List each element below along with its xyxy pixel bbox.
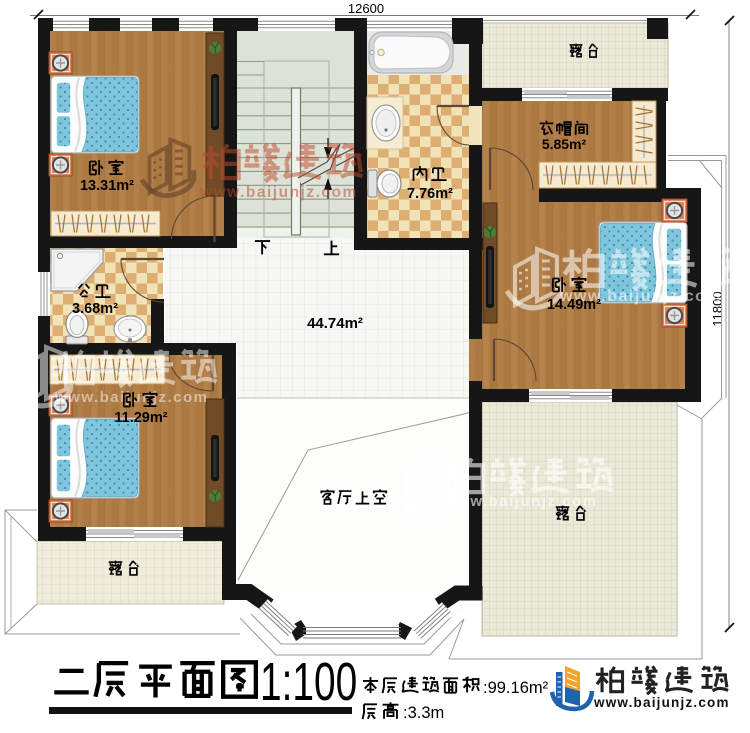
svg-text:13.31m²: 13.31m² — [80, 178, 134, 194]
svg-text:44.74m²: 44.74m² — [307, 315, 363, 332]
svg-text::99.16m²: :99.16m² — [483, 679, 549, 697]
svg-text:11.29m²: 11.29m² — [114, 410, 167, 426]
svg-text:3.68m²: 3.68m² — [72, 301, 118, 317]
svg-text:14.49m²: 14.49m² — [547, 297, 601, 313]
svg-text::3.3m: :3.3m — [403, 704, 444, 722]
svg-text:www.baijunjz.com: www.baijunjz.com — [199, 184, 358, 201]
svg-text:www.baijunjz.com: www.baijunjz.com — [54, 389, 208, 406]
svg-text:5.85m²: 5.85m² — [542, 136, 587, 152]
svg-text:www.baijunjz.com: www.baijunjz.com — [593, 695, 730, 710]
svg-text:www.baijunjz.com: www.baijunjz.com — [443, 493, 597, 510]
svg-text:7.76m²: 7.76m² — [407, 186, 453, 202]
svg-text:12600: 12600 — [348, 1, 384, 16]
svg-text:1:100: 1:100 — [260, 651, 357, 712]
